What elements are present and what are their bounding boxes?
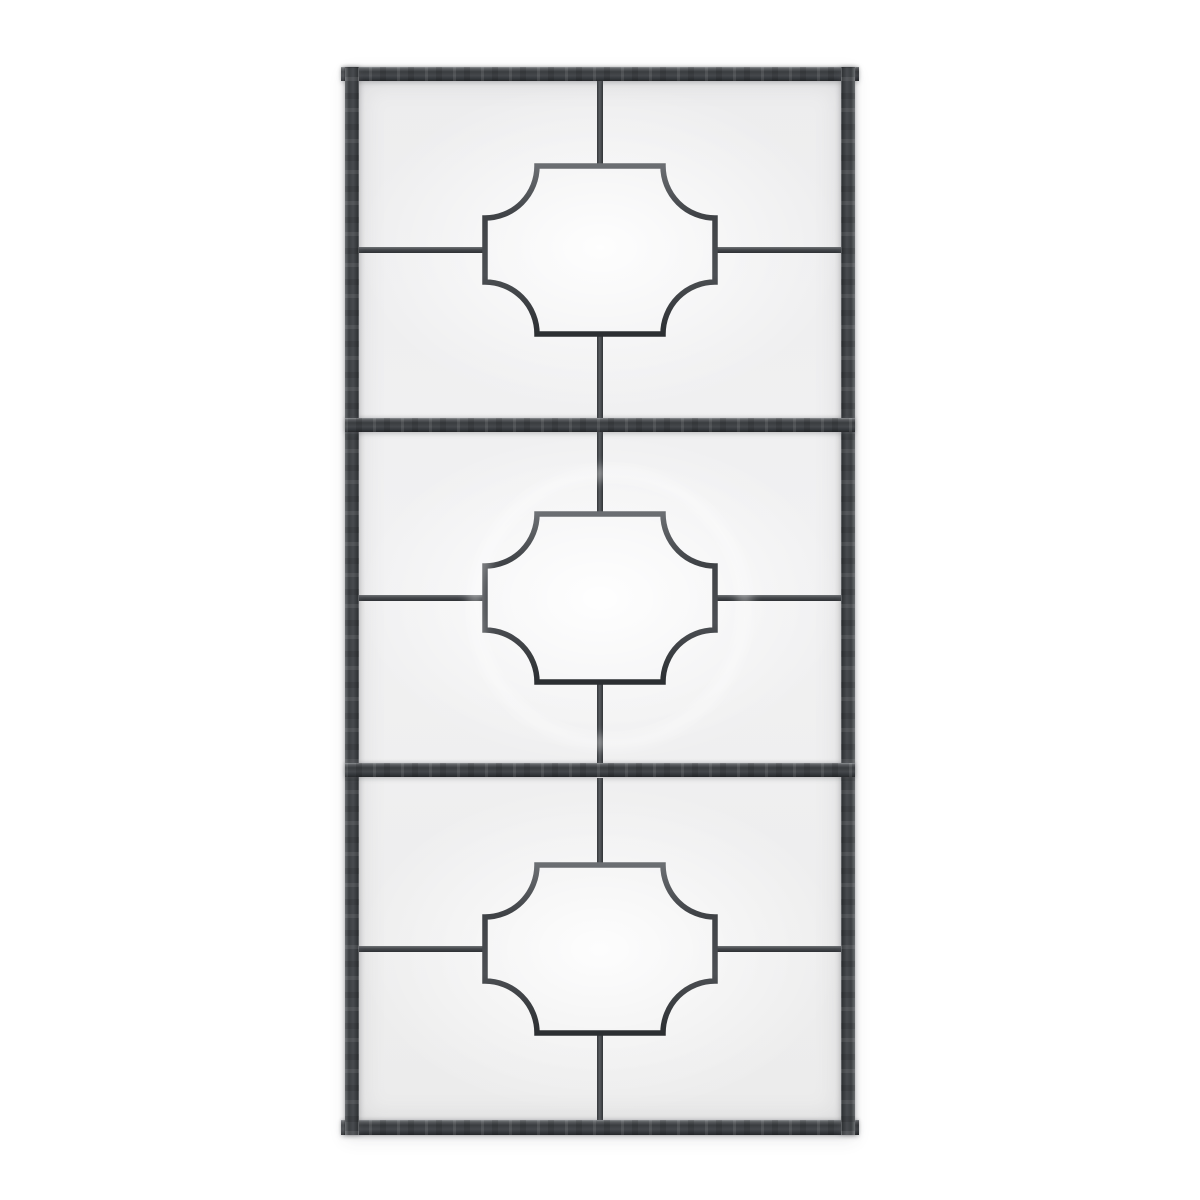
muntin-horizontal-right <box>715 247 841 253</box>
frame-left-bar <box>345 67 359 1135</box>
medallion-outline <box>485 166 715 334</box>
muntin-horizontal-left <box>359 946 485 952</box>
muntin-vertical-bottom <box>597 334 603 419</box>
quatrefoil-medallion <box>475 855 725 1043</box>
muntin-vertical-top <box>597 81 603 166</box>
muntin-vertical-bottom <box>597 682 603 764</box>
muntin-horizontal-right <box>715 946 841 952</box>
frame-bottom-bar <box>341 1120 859 1135</box>
quatrefoil-medallion <box>475 504 725 692</box>
section-divider-bar <box>345 763 855 777</box>
frame-right-bar <box>841 67 855 1135</box>
windowpane-mirror <box>345 67 855 1135</box>
muntin-vertical-bottom <box>597 1033 603 1120</box>
medallion-outline <box>485 514 715 682</box>
product-photo <box>0 0 1200 1200</box>
frame-top-bar <box>341 67 859 81</box>
quatrefoil-medallion <box>475 156 725 344</box>
muntin-horizontal-left <box>359 595 485 601</box>
muntin-horizontal-left <box>359 247 485 253</box>
mirror-glass <box>359 81 841 1120</box>
section-divider-bar <box>345 418 855 432</box>
muntin-horizontal-right <box>715 595 841 601</box>
muntin-vertical-top <box>597 432 603 514</box>
muntin-vertical-top <box>597 778 603 865</box>
medallion-outline <box>485 865 715 1033</box>
